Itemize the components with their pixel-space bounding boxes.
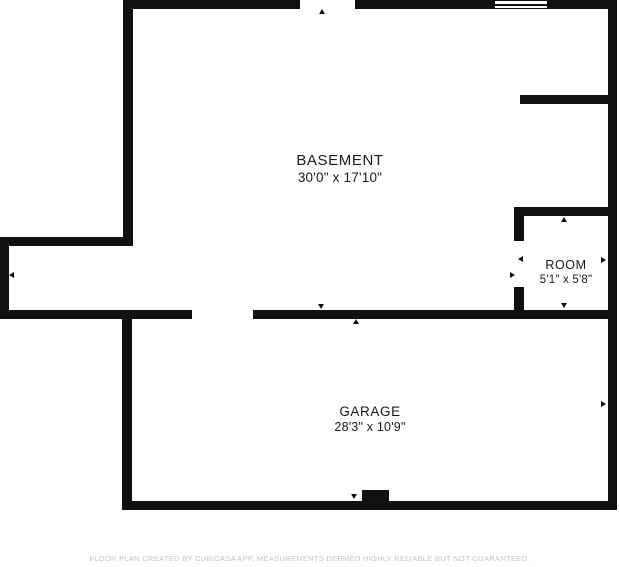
opening-marker-icon	[124, 401, 129, 407]
wall-room-top	[514, 207, 610, 216]
opening-marker-icon	[9, 272, 14, 278]
opening-marker-icon	[561, 303, 567, 308]
wall-partition-stub	[520, 95, 610, 104]
wall-right	[608, 0, 617, 510]
wall-alcove-left	[0, 237, 9, 318]
room-name: ROOM	[516, 258, 616, 273]
wall-room-left-upper	[514, 207, 524, 241]
opening-marker-icon	[561, 217, 567, 222]
room-dimensions: 28'3" x 10'9"	[270, 420, 470, 435]
room-label-basement: BASEMENT 30'0" x 17'10"	[240, 152, 440, 187]
wall-alcove-top	[0, 237, 133, 246]
window-end-cap	[547, 0, 550, 9]
room-dimensions: 5'1" x 5'8"	[516, 273, 616, 287]
room-dimensions: 30'0" x 17'10"	[240, 170, 440, 186]
wall-basement-left	[123, 0, 133, 246]
window-icon	[492, 0, 550, 9]
wall-top-right-segment	[355, 0, 617, 9]
room-label-room: ROOM 5'1" x 5'8"	[516, 258, 616, 287]
opening-marker-icon	[319, 9, 325, 14]
wall-garage-left	[122, 310, 132, 510]
room-name: BASEMENT	[240, 152, 440, 170]
opening-marker-icon	[351, 494, 357, 499]
window-pane-line	[493, 4, 549, 6]
opening-marker-icon	[353, 319, 359, 324]
room-label-garage: GARAGE 28'3" x 10'9"	[270, 404, 470, 436]
garage-door-post	[362, 490, 389, 502]
room-name: GARAGE	[270, 404, 470, 420]
opening-marker-icon	[601, 401, 606, 407]
wall-top-left-segment	[123, 0, 300, 9]
disclaimer-text: FLOOR PLAN CREATED BY CUBICASA APP. MEAS…	[0, 554, 619, 563]
wall-garage-bottom	[122, 501, 617, 510]
wall-mid-left-segment	[0, 310, 192, 319]
opening-marker-icon	[510, 272, 515, 278]
floor-plan: BASEMENT 30'0" x 17'10" ROOM 5'1" x 5'8"…	[0, 0, 619, 567]
opening-marker-icon	[318, 304, 324, 309]
wall-mid-right-segment	[253, 310, 617, 319]
